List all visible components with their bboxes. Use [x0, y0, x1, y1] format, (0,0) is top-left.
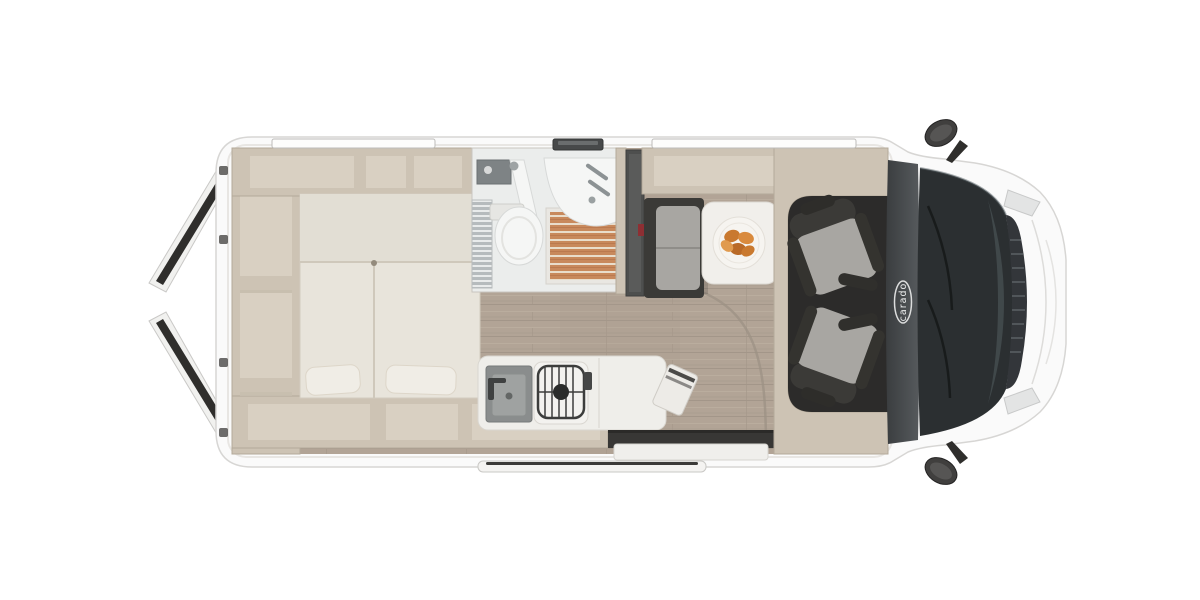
rear-double-bed — [300, 194, 480, 398]
entry-door-opening — [608, 430, 774, 460]
breakfast-plate — [713, 217, 765, 269]
entry-inner-step — [614, 444, 768, 460]
bathroom-wall — [616, 148, 626, 294]
carado-badge: carado — [895, 281, 912, 323]
bed-head-section — [300, 194, 480, 262]
cab — [774, 148, 888, 454]
dashboard: carado — [886, 160, 920, 444]
side-mirror-bottom — [920, 441, 968, 490]
bathroom-shelf — [477, 160, 511, 184]
roof-window-dinette — [652, 139, 856, 148]
camper-floorplan: carado — [0, 0, 1200, 600]
side-mirror-top — [920, 114, 968, 163]
windshield — [918, 168, 1014, 436]
wardrobe — [626, 150, 644, 296]
basin-drain — [589, 197, 596, 204]
roof-window-rear — [272, 139, 435, 148]
pillow-right — [386, 365, 457, 395]
fire-extinguisher — [638, 224, 644, 236]
bed-latch — [371, 260, 377, 266]
gas-hob — [534, 362, 592, 424]
sink-drain — [506, 393, 513, 400]
dinette-overhead-shelf — [642, 148, 790, 194]
burner — [553, 384, 569, 400]
dinette-bench — [644, 198, 708, 298]
brand-logo-text: carado — [898, 283, 909, 322]
kitchen-counter — [478, 356, 699, 430]
dinette-table — [702, 202, 778, 284]
shower-door-hinge — [510, 162, 519, 171]
roof-windows — [272, 139, 856, 150]
hob-knob — [584, 372, 592, 390]
pillow-left — [305, 364, 361, 396]
tambour-door — [472, 200, 492, 288]
bathroom — [472, 148, 626, 294]
sliding-door-step — [478, 461, 706, 472]
